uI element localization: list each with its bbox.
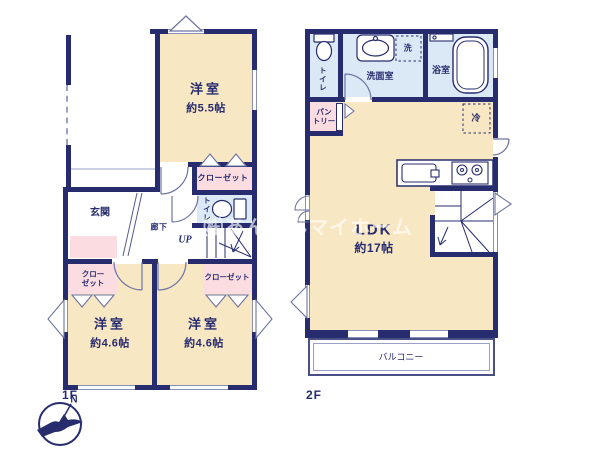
wall-segment [423,29,428,102]
entrance-mat [70,236,117,258]
wall-segment [305,29,310,195]
label-closet-left-line2: ゼット [82,278,105,287]
label-ldk-area: 約17帖 [354,242,393,256]
label-compass-north: N [70,394,77,406]
wall-segment [63,187,160,192]
label-bedroom55-area: 約5.5帖 [186,103,226,116]
wall-segment [430,186,498,191]
label-pantry: パン トリー [313,108,336,125]
wall-segment [63,259,112,264]
label-bathroom: 浴室 [432,65,450,75]
label-bedroom46R-area: 約4.6帖 [184,338,224,351]
wall-segment [305,131,343,136]
window-segment [252,70,257,110]
window-segment [78,385,135,390]
window-segment [170,385,228,390]
window-segment [348,330,378,338]
wall-segment [192,190,257,195]
label-pantry-line2: トリー [313,116,336,125]
wall-segment [66,35,71,85]
wall-segment [63,332,68,390]
wall-segment [493,78,498,138]
label-bedroom46R-name: 洋室 [188,318,220,333]
wall-segment [252,332,257,390]
label-toilet-2f: トイレ [318,66,327,92]
label-entrance: 玄関 [90,207,110,219]
window-segment [493,48,498,78]
wall-segment [63,187,68,300]
window-segment [410,330,448,338]
wall-segment [493,252,498,338]
window-segment [252,300,257,332]
window-segment [305,285,310,318]
label-closet-left: クロー ゼット [82,270,105,287]
label-bedroom46L-name: 洋室 [94,318,126,333]
window-segment [168,29,204,34]
label-refrigerator: 冷 [471,113,480,123]
wall-segment [372,97,498,102]
wall-segment [305,330,348,338]
label-washroom: 洗面室 [366,71,393,81]
watermark: ㈱あんしんマイホーム [160,211,456,240]
wall-segment [155,29,160,192]
wall-segment [152,259,157,390]
label-washer-space: 洗 [404,43,413,52]
label-closet-top: クローゼット [198,173,249,182]
wall-segment [252,29,257,70]
label-bedroom55-name: 洋室 [190,83,222,98]
wall-segment [252,110,257,300]
wall-segment [188,259,257,264]
wall-segment [188,162,257,167]
wall-segment [305,97,345,102]
wall-segment [228,385,257,390]
label-floor-2f: 2F [306,389,322,403]
label-balcony: バルコニー [379,352,424,362]
door-arc [493,139,509,155]
window-segment [63,300,68,332]
wall-segment [305,29,498,34]
window-segment [66,85,71,145]
wall-segment [430,252,498,257]
window-segment [493,222,498,252]
wall-segment [378,330,410,338]
room-bedroom-5-5 [160,34,252,162]
wall-segment [338,29,343,102]
window-segment [493,192,498,222]
wall-segment [66,145,71,190]
wall-segment [448,330,498,338]
label-bedroom46L-area: 約4.6帖 [90,338,130,351]
floor-plan: 洋室 約5.5帖 クローゼット トイレ 玄関 廊下 UP クロー ゼット クロー… [0,0,600,449]
wall-segment [493,29,498,48]
entrance-step-line [123,193,142,256]
pantry-sliding-door [336,103,343,131]
label-closet-right: クローゼット [205,274,250,283]
compass-icon [37,403,83,445]
